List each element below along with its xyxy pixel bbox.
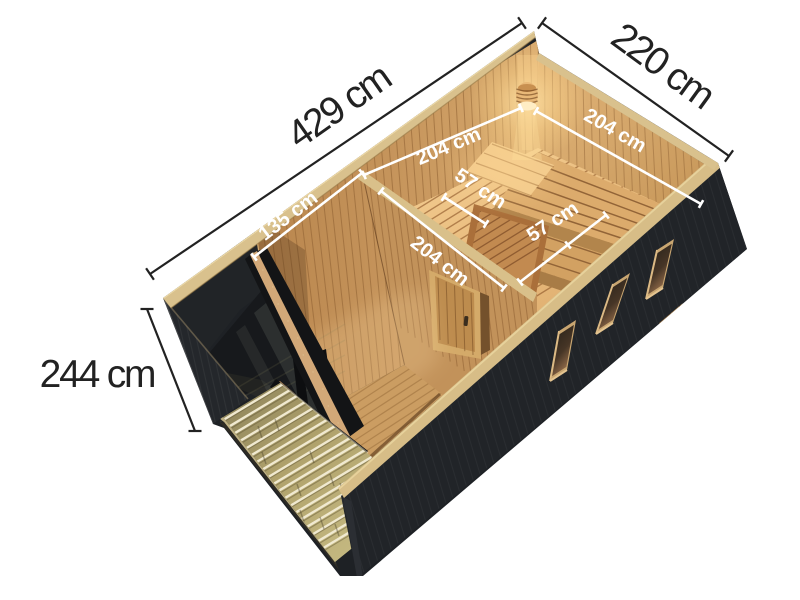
svg-text:244 cm: 244 cm xyxy=(40,353,155,396)
